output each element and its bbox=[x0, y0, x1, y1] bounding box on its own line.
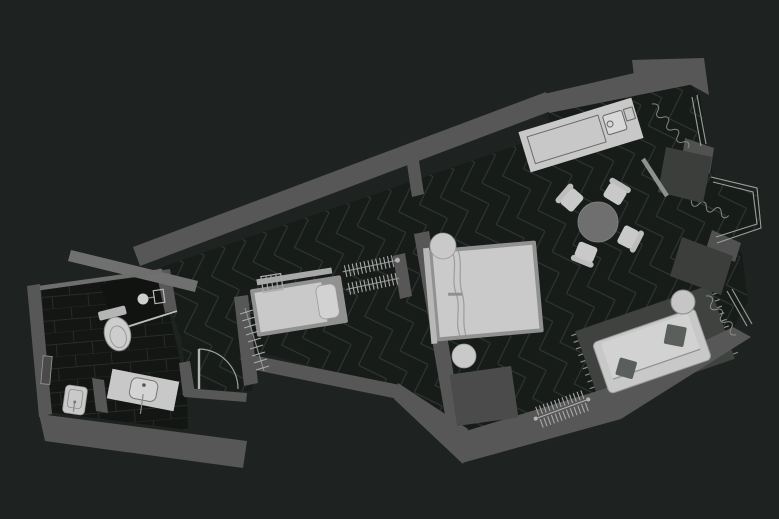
bench-group bbox=[450, 366, 519, 426]
sofa-pillow bbox=[664, 324, 687, 347]
floor-plan-canvas bbox=[0, 0, 779, 519]
washbasin bbox=[62, 385, 88, 416]
floor-plan-svg bbox=[0, 0, 779, 519]
nightstand-bottom bbox=[452, 344, 476, 368]
double-bed-mattress bbox=[433, 245, 540, 337]
shower-head bbox=[138, 294, 149, 305]
towel-niche bbox=[41, 356, 52, 385]
towel-niche-group bbox=[41, 356, 52, 385]
dining-table bbox=[578, 202, 618, 242]
washbasin-group bbox=[62, 385, 88, 416]
side-table-round bbox=[671, 290, 695, 314]
duvet-tuck bbox=[448, 293, 462, 295]
bed-bench bbox=[450, 366, 519, 426]
nightstand-top bbox=[430, 233, 456, 259]
